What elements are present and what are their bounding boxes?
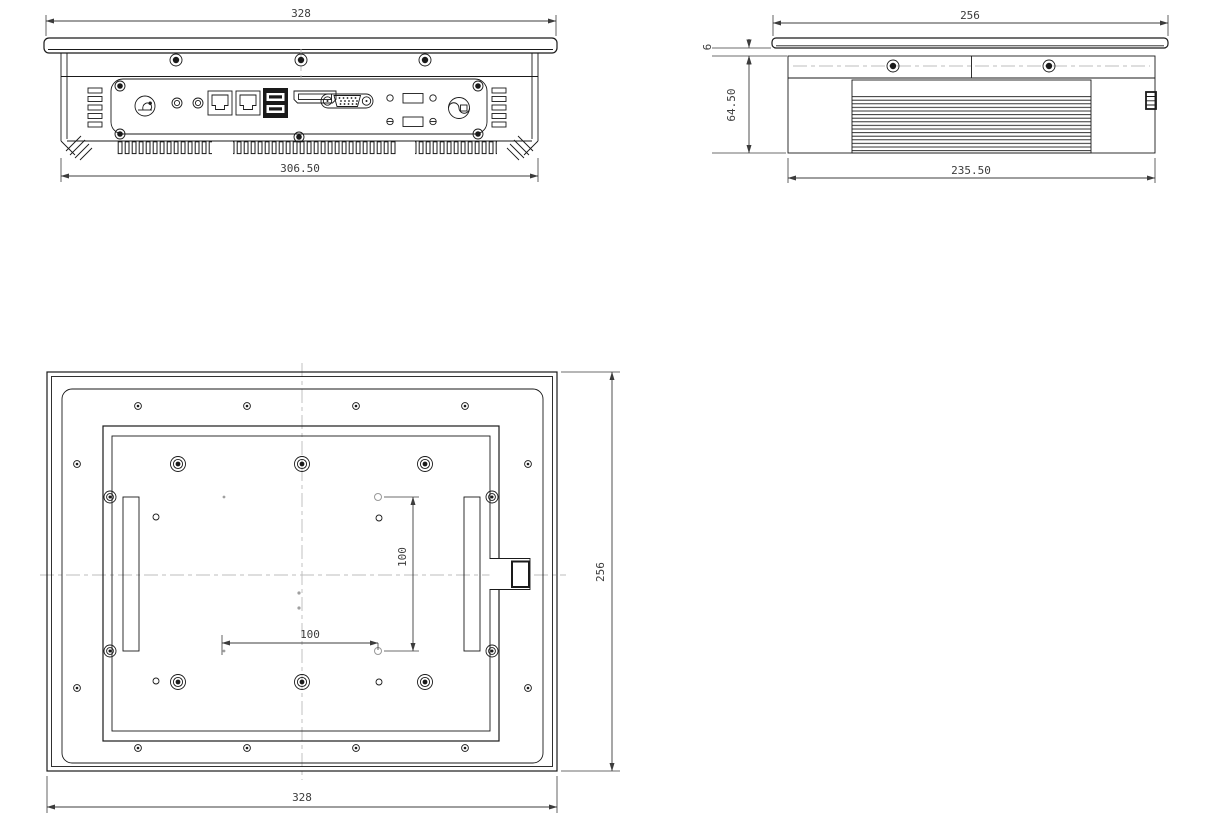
screw-hole xyxy=(135,403,142,410)
front-bezel-side xyxy=(772,38,1168,48)
aux-holes xyxy=(153,514,382,685)
bezel-screw-holes xyxy=(74,403,532,752)
dim-vesa-horizontal: 100 xyxy=(222,628,378,655)
dim-io-overall-width: 328 xyxy=(46,7,556,36)
dim-panel-thickness: 6 xyxy=(701,39,787,65)
dim-label: 256 xyxy=(960,9,980,22)
io-plate xyxy=(111,79,487,134)
center-hole xyxy=(297,591,300,594)
screw-hole xyxy=(525,685,532,692)
gasket-outline xyxy=(62,389,543,763)
vesa-hole xyxy=(223,650,226,653)
front-bezel xyxy=(44,38,557,53)
screw-hole xyxy=(74,685,81,692)
dim-label: 100 xyxy=(300,628,320,641)
screw xyxy=(418,457,433,472)
screw-hole xyxy=(353,745,360,752)
antenna-hole-icon xyxy=(387,95,393,101)
usb-dual-port-icon xyxy=(263,88,288,118)
vent-slots-right xyxy=(492,88,506,127)
io-ports xyxy=(135,88,470,127)
screw xyxy=(170,54,182,66)
side-tab-connector xyxy=(490,559,531,590)
io-cutouts xyxy=(387,94,436,127)
hole xyxy=(153,514,159,520)
screw xyxy=(419,54,431,66)
screw xyxy=(115,81,125,91)
screw-hole xyxy=(135,745,142,752)
screw xyxy=(294,132,304,142)
dim-io-body-width: 306.50 xyxy=(61,158,538,182)
heatsink-fins-bottom xyxy=(67,141,532,156)
screw-hole xyxy=(244,745,251,752)
power-connector-icon xyxy=(449,98,470,119)
antenna-hole-icon xyxy=(430,95,436,101)
rear-view: 100 100 256 328 xyxy=(40,363,620,813)
dim-label: 6 xyxy=(701,44,714,51)
screw xyxy=(171,457,186,472)
screw xyxy=(418,675,433,690)
screw xyxy=(104,645,116,657)
mount-slot-right xyxy=(464,497,480,651)
power-button xyxy=(135,96,155,116)
back-cover xyxy=(103,426,499,741)
lan-port-icon xyxy=(208,91,232,115)
dim-label: 328 xyxy=(291,7,311,20)
panel-pc-drawing: 328 xyxy=(0,0,1209,826)
dim-side-overall-depth: 256 xyxy=(773,9,1168,36)
hole xyxy=(153,678,159,684)
hatch-right xyxy=(507,136,533,160)
screw xyxy=(387,118,393,124)
vga-pins xyxy=(339,97,358,105)
screw xyxy=(486,645,498,657)
vesa-hole xyxy=(375,494,382,501)
audio-jack-icon xyxy=(172,98,182,108)
dim-label: 306.50 xyxy=(280,162,320,175)
technical-drawing-page: 328 xyxy=(0,0,1209,826)
screw-hole xyxy=(74,461,81,468)
dim-label: 256 xyxy=(594,562,607,582)
screw-hole xyxy=(462,403,469,410)
io-plate-screws xyxy=(115,81,483,142)
screw-hole xyxy=(525,461,532,468)
center-hole xyxy=(297,606,300,609)
screw xyxy=(486,491,498,503)
cover-screws xyxy=(104,457,498,690)
vesa-hole xyxy=(223,496,226,499)
screw xyxy=(473,81,483,91)
dim-rear-width: 328 xyxy=(47,776,557,813)
screw xyxy=(104,491,116,503)
mount-screws-row xyxy=(170,54,431,66)
screw xyxy=(430,118,436,124)
side-connector xyxy=(1146,92,1156,109)
vga-port-icon xyxy=(321,94,373,108)
dim-label: 235.50 xyxy=(951,164,991,177)
hole xyxy=(376,679,382,685)
lan-port-icon xyxy=(236,91,260,115)
io-cutout xyxy=(403,117,423,127)
dim-label: 328 xyxy=(292,791,312,804)
side-body xyxy=(788,56,1156,153)
screw-hole xyxy=(353,403,360,410)
bottom-io-view: 328 xyxy=(44,7,557,182)
screw xyxy=(171,675,186,690)
side-view: 256 6 64.50 xyxy=(701,9,1168,183)
audio-jack-icon xyxy=(193,98,203,108)
vent-slots-left xyxy=(88,88,102,127)
dim-vesa-vertical: 100 xyxy=(384,497,419,651)
mount-slot-left xyxy=(123,497,139,651)
screw-hole xyxy=(244,403,251,410)
heatsink-block xyxy=(852,80,1091,153)
hatch-left xyxy=(66,136,92,160)
screw-hole xyxy=(462,745,469,752)
dim-rear-height: 256 xyxy=(561,372,620,771)
dim-label: 64.50 xyxy=(725,88,738,121)
dim-body-depth: 235.50 xyxy=(788,158,1155,183)
dim-label: 100 xyxy=(396,547,409,567)
dim-body-height: 64.50 xyxy=(712,56,786,153)
hole xyxy=(376,515,382,521)
io-cutout xyxy=(403,94,423,104)
